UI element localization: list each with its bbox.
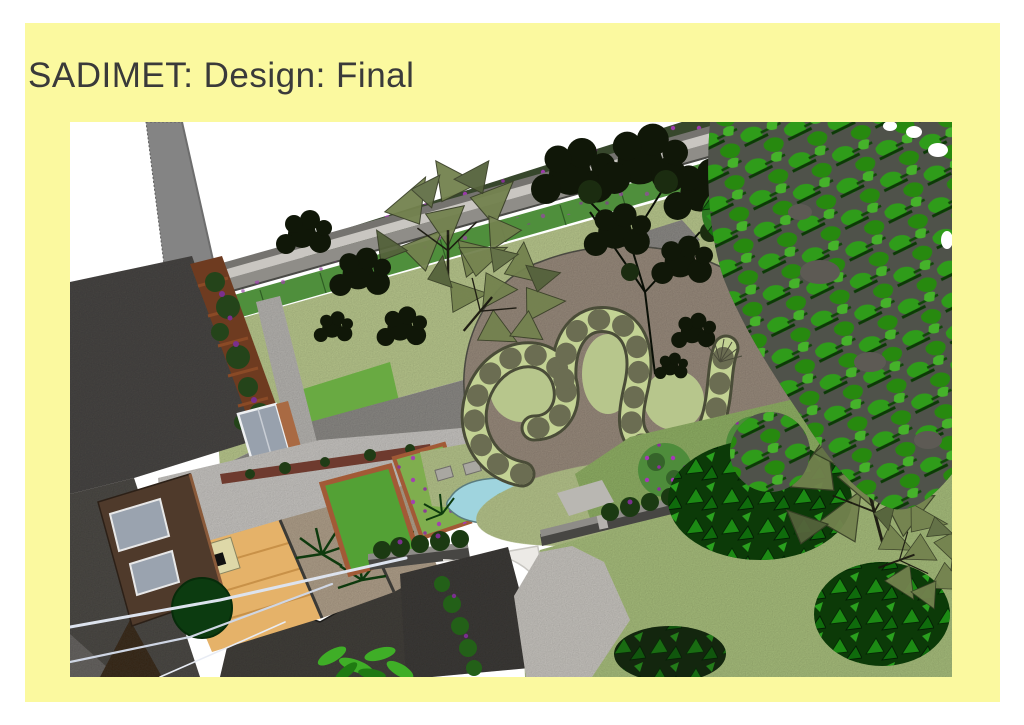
garden-render-figure — [70, 122, 952, 677]
bright-tree-canopy — [708, 122, 952, 510]
garden-render-svg — [70, 122, 952, 677]
slide: SADIMET: Design: Final — [25, 23, 1000, 702]
presentation-page: SADIMET: Design: Final — [0, 0, 1024, 725]
slide-title: SADIMET: Design: Final — [28, 56, 414, 96]
